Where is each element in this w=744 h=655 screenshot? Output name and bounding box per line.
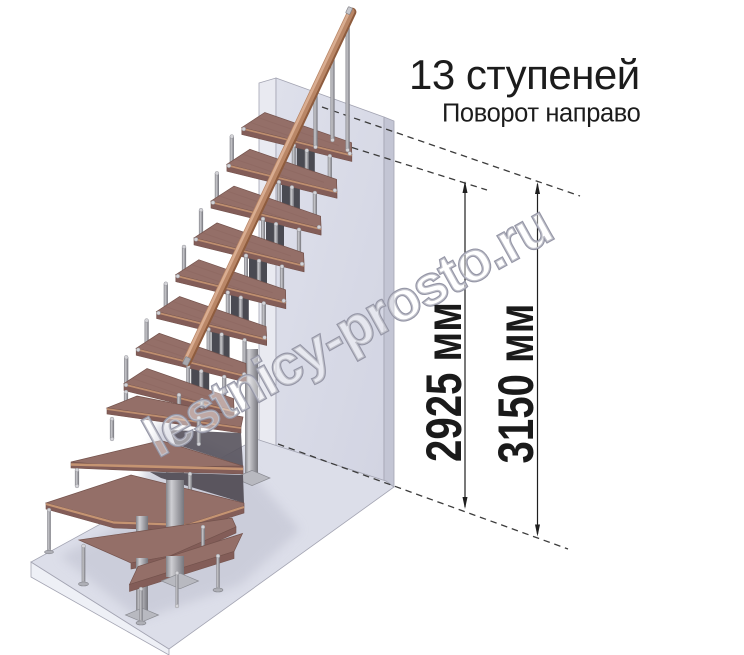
svg-text:13 ступеней: 13 ступеней	[409, 51, 640, 98]
svg-text:2925 мм: 2925 мм	[416, 302, 472, 462]
svg-text:Поворот направо: Поворот направо	[442, 100, 641, 128]
svg-text:3150 мм: 3150 мм	[488, 304, 544, 464]
